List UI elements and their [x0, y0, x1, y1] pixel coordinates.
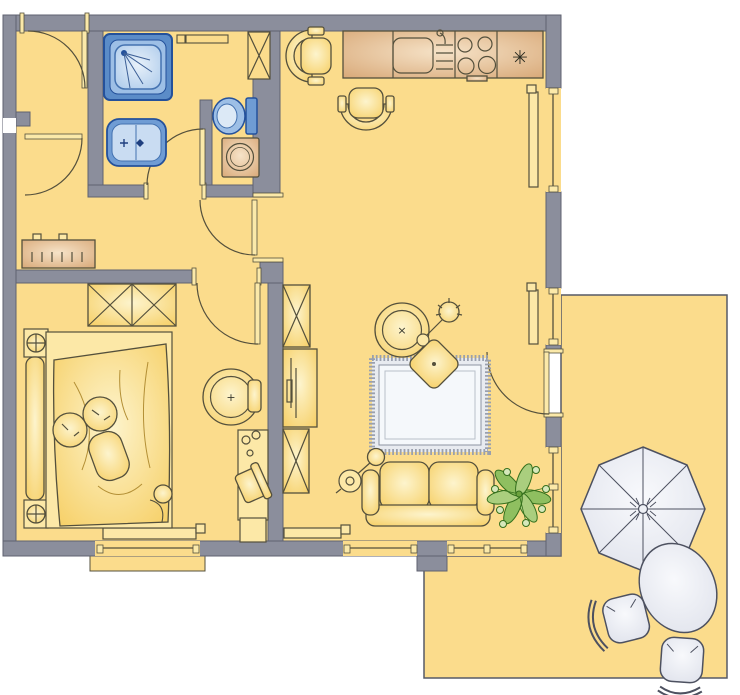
- wall-bathroom-left: [88, 31, 103, 197]
- wall-bathroom-bottom-a: [88, 185, 147, 197]
- wall-vestibule-stub: [16, 112, 30, 126]
- duct-shaft: [248, 32, 270, 79]
- kitchen-radiator: [527, 85, 538, 187]
- living-window-bottom-b: [447, 541, 527, 556]
- wall-right-5: [546, 533, 561, 556]
- washbasin: [107, 119, 166, 166]
- shower: [104, 34, 172, 100]
- wall-living-left: [268, 262, 283, 541]
- pillow-2: [83, 397, 117, 431]
- wardrobe: [88, 284, 176, 326]
- armchair-mark: +: [226, 391, 235, 404]
- wall-left: [3, 15, 16, 556]
- kitchen-window: [546, 88, 561, 192]
- fridge-symbol: ✳: [512, 47, 528, 69]
- wall-right-4: [546, 416, 561, 447]
- floor-plan-stage: ✳: [0, 0, 740, 695]
- desk-side-unit: [240, 518, 266, 542]
- shelf-cabinet-bottom: [283, 429, 309, 493]
- sofa-seat-left: [380, 462, 429, 509]
- desk: [232, 430, 272, 520]
- tv-cabinet: [283, 349, 317, 427]
- bathroom-shelf: [177, 35, 228, 43]
- wall-corner-block: [260, 262, 283, 283]
- nightstand-lamp-top: [24, 329, 48, 357]
- wall-right-1: [546, 15, 561, 88]
- bed-corner-cushion: [154, 485, 172, 503]
- double-bed: [46, 332, 172, 528]
- floor-plan-svg: ✳: [0, 0, 740, 695]
- headboard: [26, 357, 44, 500]
- sofa-arm-right: [477, 470, 494, 515]
- living-radiator-right: [527, 283, 538, 344]
- pillow-1: [53, 413, 87, 447]
- entrance-recess: [3, 118, 16, 133]
- living-window-bottom-a: [343, 541, 417, 556]
- bedroom-window-sill: [90, 556, 205, 571]
- sofa-back: [366, 505, 490, 526]
- living-armchair: ×: [375, 303, 429, 357]
- sofa-seat-right: [429, 462, 478, 509]
- nightstand-lamp-bottom: [24, 500, 48, 528]
- wall-bedroom-top: [16, 270, 195, 283]
- washing-machine: [222, 138, 259, 177]
- wall-right-2: [546, 192, 561, 288]
- shelf-cabinet-top: [283, 285, 310, 347]
- sofa: [362, 462, 494, 526]
- wall-pier-below: [417, 556, 447, 571]
- toilet: [213, 98, 257, 134]
- armchair-mark: ×: [397, 324, 406, 337]
- bedroom-window: [95, 541, 200, 556]
- sofa-arm-left: [362, 470, 379, 515]
- living-window-upper-right: [546, 288, 561, 345]
